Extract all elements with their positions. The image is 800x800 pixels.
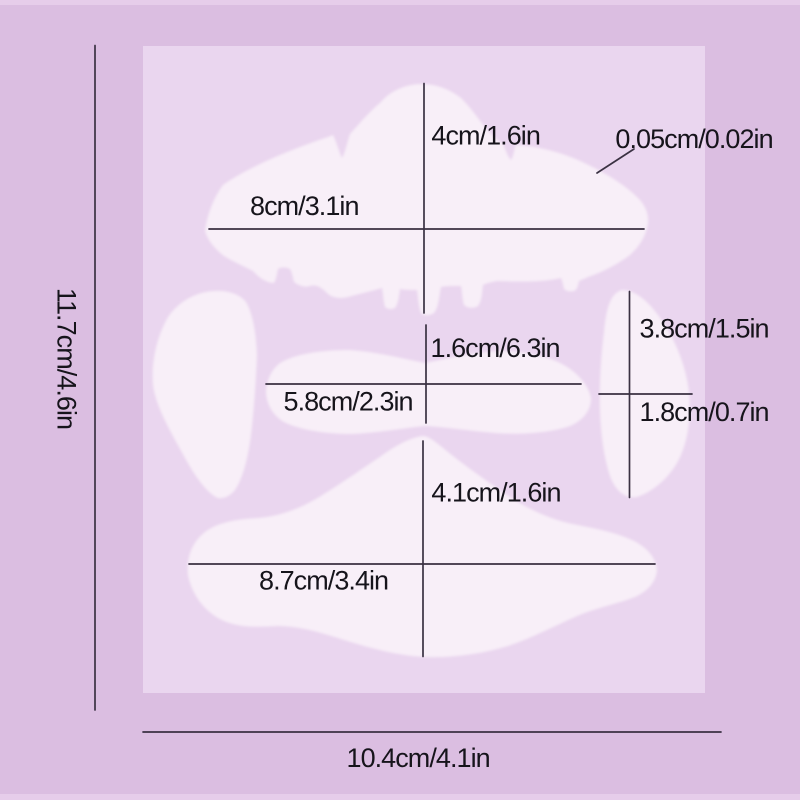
svg-text:1.8cm/0.7in: 1.8cm/0.7in bbox=[640, 397, 769, 427]
svg-text:5.8cm/2.3in: 5.8cm/2.3in bbox=[284, 387, 413, 417]
svg-text:4cm/1.6in: 4cm/1.6in bbox=[431, 121, 540, 151]
svg-text:10.4cm/4.1in: 10.4cm/4.1in bbox=[347, 743, 490, 773]
svg-text:11.7cm/4.6in: 11.7cm/4.6in bbox=[52, 288, 82, 429]
svg-text:8cm/3.1in: 8cm/3.1in bbox=[250, 191, 359, 221]
svg-text:1.6cm/6.3in: 1.6cm/6.3in bbox=[431, 333, 560, 363]
svg-text:0.05cm/0.02in: 0.05cm/0.02in bbox=[615, 124, 772, 154]
svg-text:3.8cm/1.5in: 3.8cm/1.5in bbox=[640, 314, 769, 344]
svg-text:8.7cm/3.4in: 8.7cm/3.4in bbox=[259, 566, 388, 596]
svg-text:4.1cm/1.6in: 4.1cm/1.6in bbox=[431, 478, 560, 508]
